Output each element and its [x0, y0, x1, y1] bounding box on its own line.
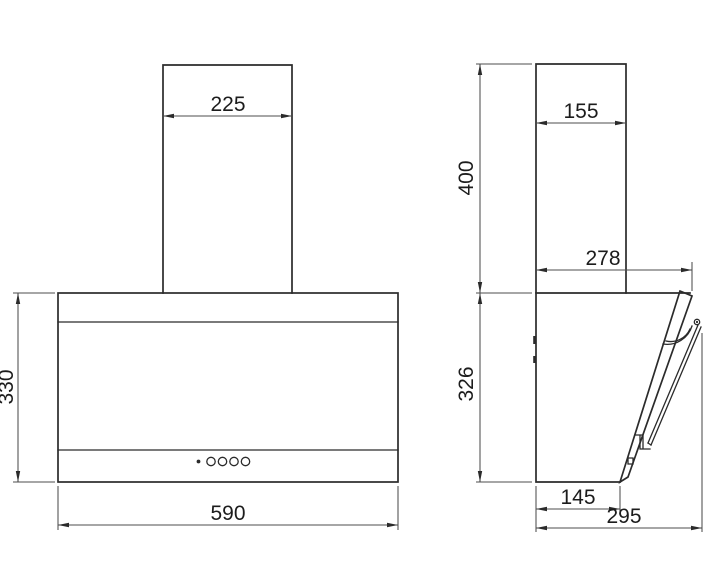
arrow-down-icon	[16, 471, 20, 482]
mounting-tab-upper	[533, 336, 536, 344]
control-button-3	[230, 457, 238, 465]
arrow-down-icon	[478, 282, 482, 293]
dim-body-height: 330	[0, 293, 55, 482]
front-view	[58, 65, 398, 482]
arrow-right-icon	[691, 526, 702, 530]
dim-label-chimney-height: 400	[455, 160, 478, 195]
dim-chimney-depth: 155	[536, 100, 626, 125]
control-button-1	[207, 457, 215, 465]
arrow-right-icon	[681, 268, 692, 272]
dim-label-total-depth: 295	[606, 505, 641, 528]
dim-label-chimney-width: 225	[210, 93, 245, 116]
front-view-dimensions: 225 330 590	[0, 93, 398, 530]
dim-side-body-height: 326	[455, 293, 532, 482]
hood-dimension-drawing: 225 330 590	[0, 0, 710, 581]
side-view	[533, 64, 701, 482]
technical-drawing-canvas: 225 330 590	[0, 0, 710, 581]
dim-upper-depth: 278	[536, 247, 692, 291]
arrow-left-icon	[536, 526, 547, 530]
glass-edge-outer	[648, 325, 698, 443]
arrow-right-icon	[615, 121, 626, 125]
dim-label-upper-depth: 278	[585, 247, 620, 270]
control-panel	[197, 457, 250, 465]
control-button-4	[241, 457, 249, 465]
dim-label-chimney-depth: 155	[563, 100, 598, 123]
dim-label-bottom-depth: 145	[560, 486, 595, 509]
arrow-up-icon	[478, 293, 482, 304]
indicator-led-dot	[197, 460, 201, 464]
mounting-tab-lower	[533, 356, 536, 363]
dim-chimney-height: 400	[455, 64, 532, 293]
dim-label-body-width: 590	[210, 502, 245, 525]
arrow-left-icon	[163, 114, 174, 118]
arrow-right-icon	[281, 114, 292, 118]
arrow-up-icon	[478, 64, 482, 75]
arrow-left-icon	[536, 268, 547, 272]
glass-end-cap	[648, 443, 651, 445]
arrow-left-icon	[536, 507, 547, 511]
tilted-front-panel	[620, 291, 692, 482]
arrow-down-icon	[478, 471, 482, 482]
side-view-dimensions: 155 400 326 278	[455, 64, 702, 532]
dim-chimney-width: 225	[163, 93, 292, 118]
arrow-left-icon	[58, 523, 69, 527]
side-body-outline	[536, 293, 690, 482]
arrow-up-icon	[16, 293, 20, 304]
dim-label-side-body-height: 326	[455, 366, 478, 401]
hinge-pivot-dot	[696, 321, 698, 323]
arrow-left-icon	[536, 121, 547, 125]
glass-edge-inner	[651, 327, 701, 445]
control-button-2	[218, 457, 226, 465]
dim-label-body-height: 330	[0, 369, 18, 404]
arrow-right-icon	[387, 523, 398, 527]
dim-body-width: 590	[58, 486, 398, 530]
